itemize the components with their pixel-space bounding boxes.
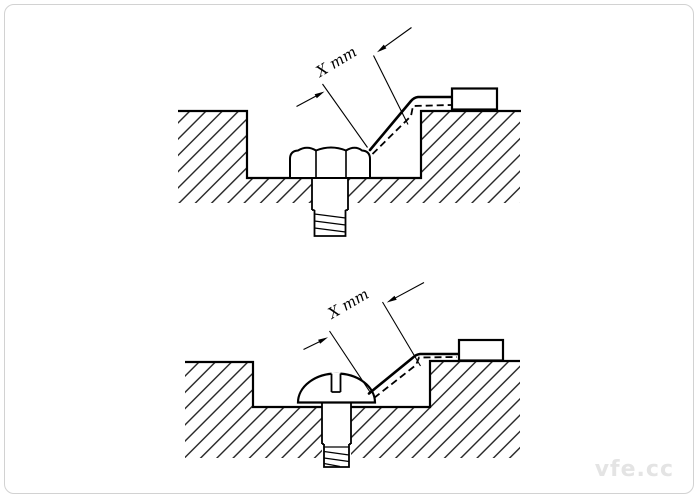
dimension-arrow-left (304, 337, 329, 349)
lower-figure: X mm (185, 283, 520, 468)
upper-right-material-hatch (348, 111, 520, 203)
upper-dimension-label: X mm (312, 43, 360, 82)
dimension-arrow-right (387, 283, 424, 303)
bolt-head-outline (290, 148, 370, 179)
extension-line-right (383, 302, 421, 366)
arrowhead (377, 45, 386, 53)
lower-reference-block (459, 340, 503, 361)
upper-dimension: X mm (297, 28, 412, 148)
upper-figure: X mm (178, 28, 521, 238)
dimension-arrow-left (297, 92, 325, 107)
lower-screw-head (298, 373, 375, 403)
extension-line-right (374, 56, 409, 125)
watermark-text: vfe.cc (595, 457, 674, 482)
upper-reference-block (452, 89, 497, 110)
technical-diagram: X mm (0, 0, 700, 500)
arrowhead (387, 296, 397, 303)
dimension-arrow-right (377, 28, 412, 53)
upper-bolt-head (290, 148, 370, 179)
lower-dimension-label: X mm (324, 285, 372, 323)
arrowhead (315, 92, 325, 99)
screenshot-canvas: X mm (0, 0, 700, 500)
lower-right-material-hatch (351, 361, 520, 458)
extension-line-left (323, 84, 368, 148)
upper-bolt-shank (312, 177, 348, 237)
shank-body (322, 402, 351, 467)
lower-screw-shank (322, 402, 351, 467)
arrowhead (318, 337, 328, 344)
screw-slot-fill (332, 373, 341, 392)
